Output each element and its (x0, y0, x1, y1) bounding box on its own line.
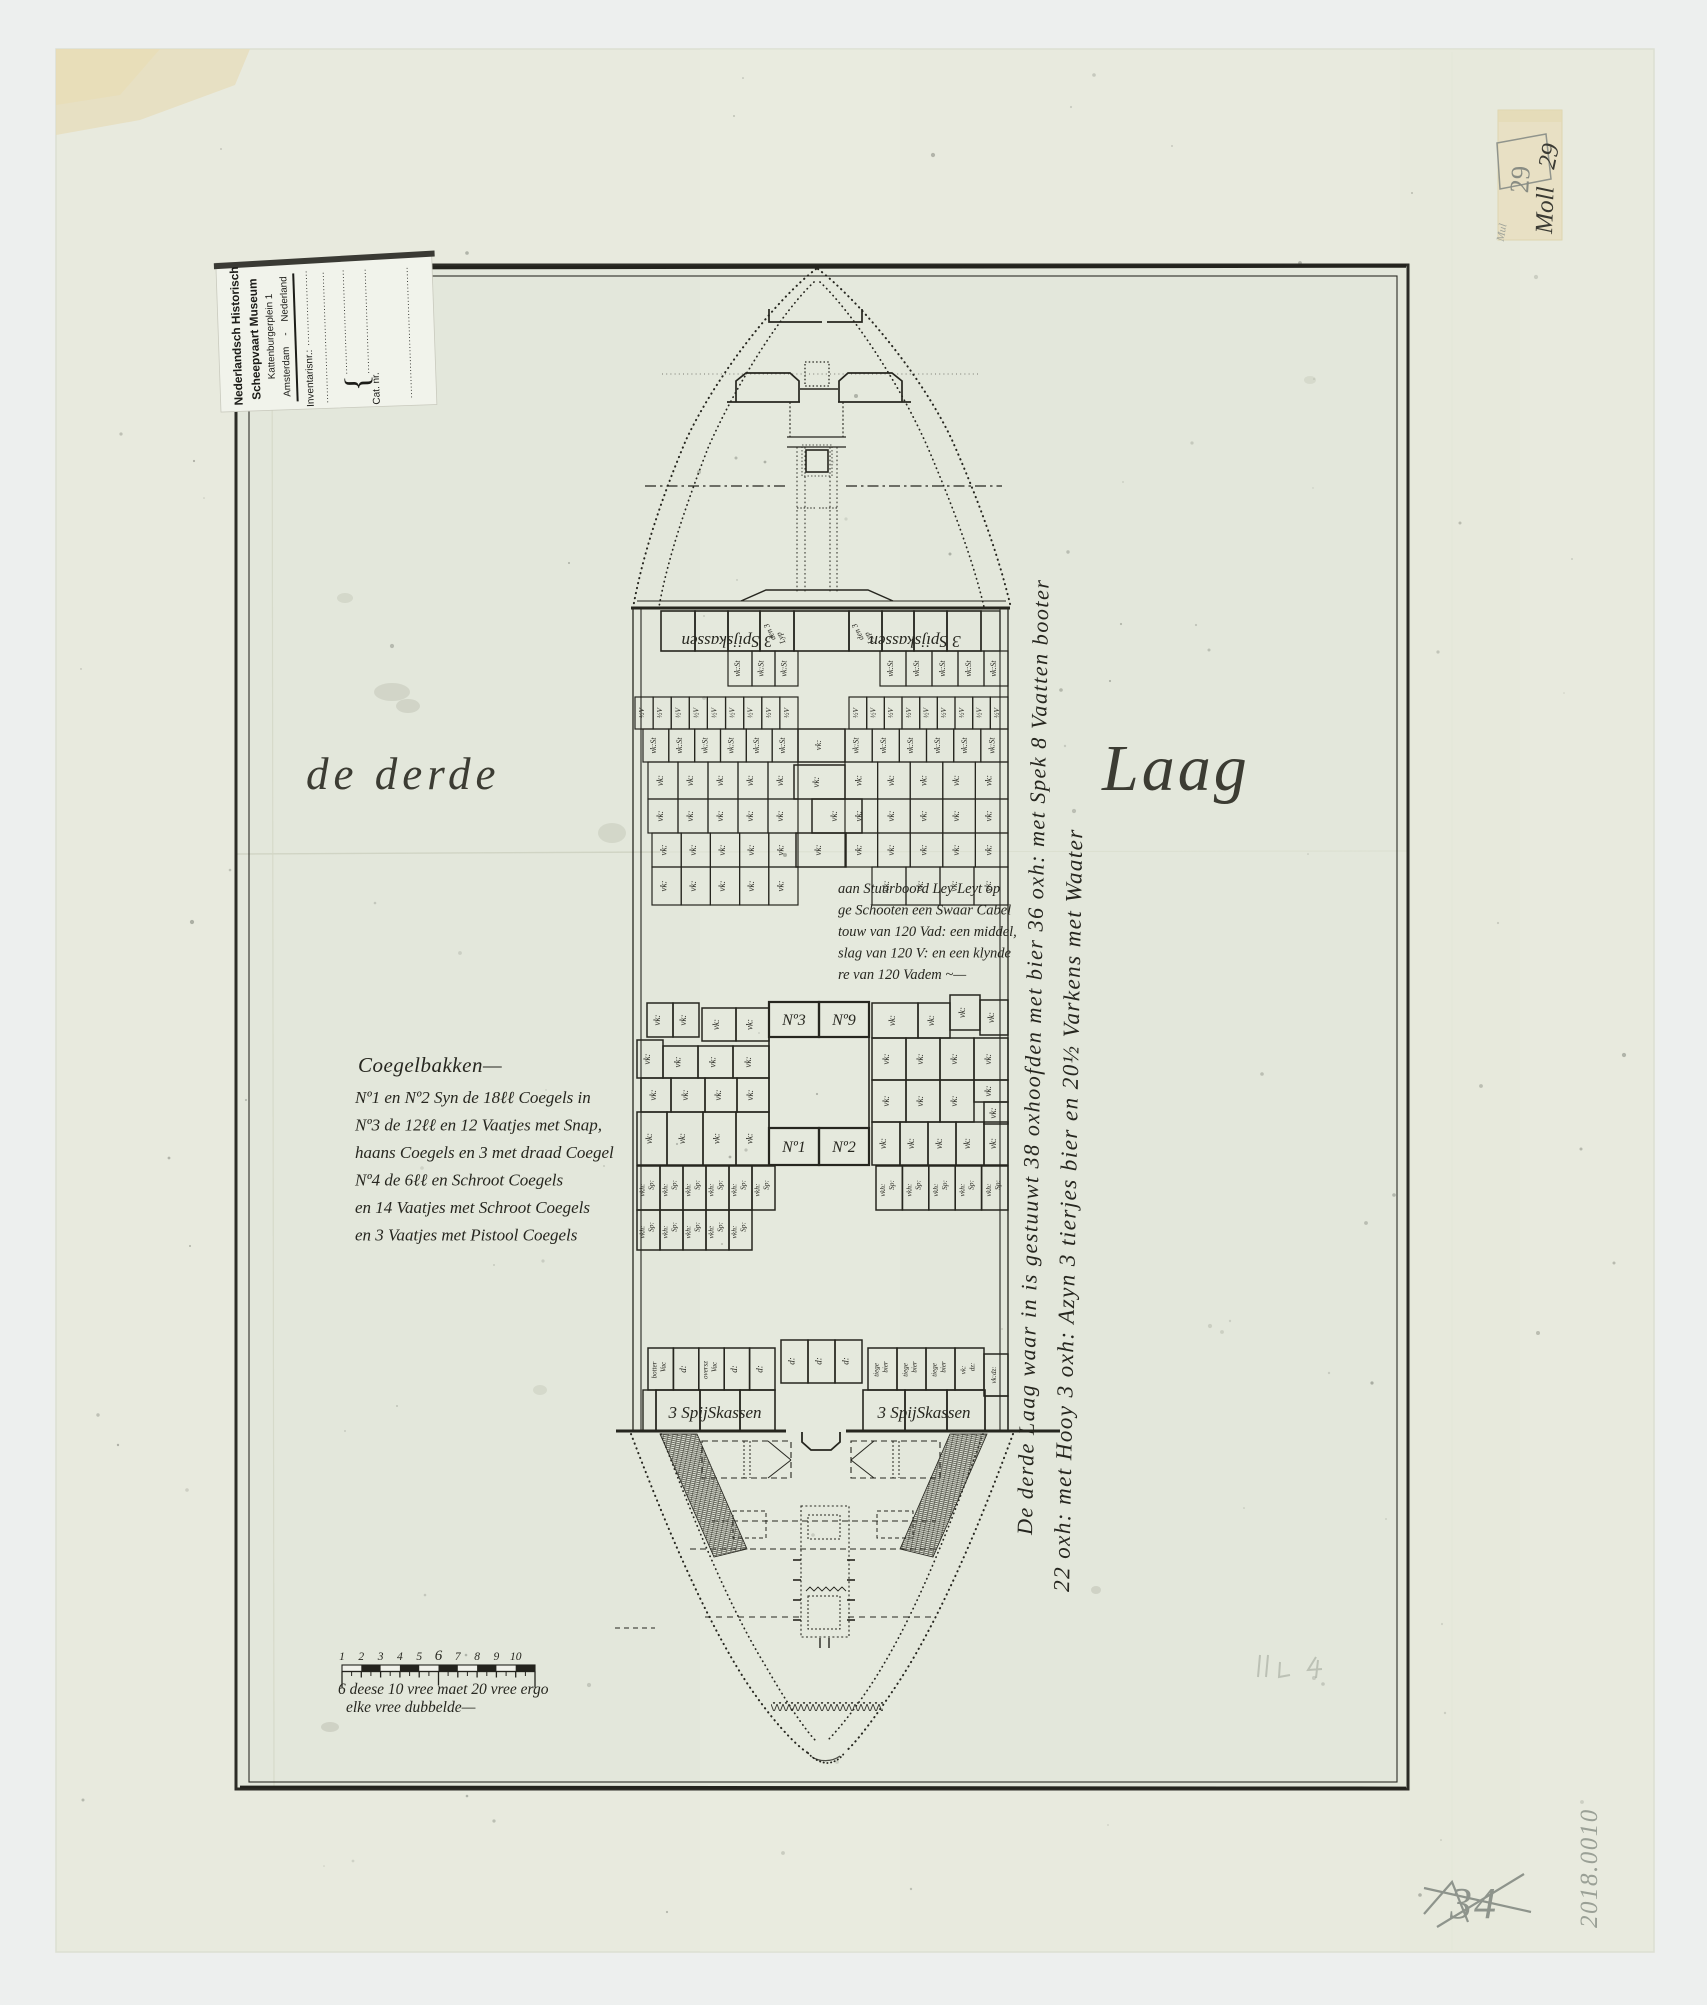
svg-text:Vac: Vac (711, 1361, 719, 1372)
svg-text:vk:: vk: (745, 811, 755, 822)
svg-text:Moll: Moll (1531, 186, 1560, 235)
svg-text:½V: ½V (957, 706, 966, 718)
svg-text:½V: ½V (851, 706, 860, 718)
svg-text:oversz: oversz (702, 1361, 710, 1379)
svg-text:vk:: vk: (708, 1057, 718, 1068)
svg-text:Inventarisnr.:: Inventarisnr.: (304, 349, 317, 407)
svg-text:Sp:: Sp: (914, 1180, 923, 1190)
svg-text:vk:St: vk:St (757, 660, 766, 677)
svg-text:vkh:: vkh: (638, 1226, 647, 1239)
svg-text:vk:: vk: (713, 1090, 723, 1101)
svg-text:Nº9: Nº9 (831, 1012, 856, 1029)
svg-text:Coegelbakken—: Coegelbakken— (358, 1053, 502, 1077)
svg-text:Sp:: Sp: (693, 1222, 702, 1232)
svg-text:vkh:: vkh: (661, 1184, 670, 1197)
svg-text:vk:St: vk:St (733, 660, 742, 677)
svg-text:vk:St: vk:St (960, 737, 969, 754)
svg-text:vk:: vk: (746, 845, 756, 856)
svg-text:Sp:: Sp: (739, 1180, 748, 1190)
svg-text:vk:St: vk:St (938, 660, 947, 677)
svg-text:Laag: Laag (1101, 732, 1250, 805)
svg-text:vk:: vk: (811, 777, 821, 788)
svg-text:vk:: vk: (688, 881, 698, 892)
svg-text:vk:: vk: (919, 845, 929, 856)
svg-text:vk:: vk: (715, 775, 725, 786)
svg-text:vk:: vk: (677, 1133, 687, 1144)
svg-text:bier: bier (911, 1361, 919, 1373)
svg-text:Nº4 de 6ℓℓ en Schroot Coegels: Nº4 de 6ℓℓ en Schroot Coegels (354, 1171, 564, 1190)
svg-text:vk:St: vk:St (752, 737, 761, 754)
svg-text:½V: ½V (728, 706, 737, 718)
svg-text:vk:dz:: vk:dz: (990, 1366, 998, 1383)
svg-text:vk:St: vk:St (906, 737, 915, 754)
svg-text:vkh:: vkh: (730, 1226, 739, 1239)
svg-text:½V: ½V (782, 706, 791, 718)
svg-text:10: 10 (510, 1651, 522, 1663)
svg-text:vk:: vk: (853, 811, 863, 822)
svg-text:vk:: vk: (984, 845, 994, 856)
svg-text:vk:: vk: (685, 811, 695, 822)
svg-text:vk:: vk: (715, 811, 725, 822)
svg-text:vk:: vk: (887, 1015, 897, 1026)
svg-text:2018.0010: 2018.0010 (1576, 1808, 1603, 1928)
svg-text:vk:: vk: (711, 1019, 721, 1030)
svg-text:Sp:: Sp: (647, 1180, 656, 1190)
svg-text:vk:: vk: (642, 1054, 652, 1065)
svg-text:vk:St: vk:St (964, 660, 973, 677)
svg-text:vkh:: vkh: (753, 1184, 762, 1197)
svg-text:vk:: vk: (775, 775, 785, 786)
svg-text:vk:St: vk:St (912, 660, 921, 677)
svg-text:vk:: vk: (878, 1138, 888, 1149)
svg-text:Sp:: Sp: (940, 1180, 949, 1190)
svg-text:vkh:: vkh: (984, 1184, 993, 1197)
svg-text:½V: ½V (975, 706, 984, 718)
svg-text:botter: botter (651, 1361, 659, 1378)
svg-text:3 Spijskassen: 3 Spijskassen (869, 632, 961, 651)
svg-text:bier: bier (882, 1361, 890, 1373)
svg-text:vk:St: vk:St (933, 737, 942, 754)
svg-text:vkh:: vkh: (957, 1184, 966, 1197)
svg-text:Nº1: Nº1 (781, 1139, 806, 1156)
svg-text:5: 5 (416, 1651, 422, 1663)
svg-text:vk:: vk: (960, 1366, 968, 1375)
svg-text:vk:: vk: (652, 1015, 662, 1026)
svg-text:vk:St: vk:St (987, 737, 996, 754)
svg-text:vk:: vk: (853, 775, 863, 786)
svg-text:vk:: vk: (775, 845, 785, 856)
svg-text:Nº3: Nº3 (781, 1012, 806, 1029)
svg-text:vk:: vk: (988, 1108, 998, 1119)
svg-text:vk:: vk: (951, 811, 961, 822)
svg-text:vk:: vk: (886, 811, 896, 822)
svg-text:touw van 120 Vad: een middel,: touw van 120 Vad: een middel, (838, 924, 1017, 940)
svg-text:tiege: tiege (931, 1363, 939, 1377)
svg-text:vk:: vk: (906, 1138, 916, 1149)
svg-text:vk:: vk: (926, 1015, 936, 1026)
svg-text:Sp:: Sp: (670, 1180, 679, 1190)
svg-text:vk:: vk: (983, 1054, 993, 1065)
svg-text:en 14 Vaatjes met Schroot Coeg: en 14 Vaatjes met Schroot Coegels (355, 1198, 590, 1217)
svg-text:vk:: vk: (919, 775, 929, 786)
svg-text:vk:: vk: (957, 1007, 967, 1018)
svg-text:vkh:: vkh: (707, 1184, 716, 1197)
svg-text:vkh:: vkh: (905, 1184, 914, 1197)
svg-text:vk:: vk: (915, 1054, 925, 1065)
svg-text:tiege: tiege (902, 1363, 910, 1377)
svg-text:vk:: vk: (745, 1133, 755, 1144)
svg-text:vk:: vk: (743, 1057, 753, 1068)
svg-text:vk:: vk: (746, 881, 756, 892)
svg-text:vk:: vk: (813, 845, 823, 856)
svg-text:vk:: vk: (962, 1138, 972, 1149)
svg-text:3 Spijskassen: 3 Spijskassen (681, 632, 773, 651)
svg-text:vk:: vk: (853, 845, 863, 856)
svg-text:Vac: Vac (660, 1361, 668, 1372)
svg-text:tiege: tiege (873, 1363, 881, 1377)
svg-text:½V: ½V (922, 706, 931, 718)
svg-text:d:: d: (678, 1365, 688, 1373)
svg-text:½V: ½V (673, 706, 682, 718)
svg-text:vk:St: vk:St (726, 737, 735, 754)
svg-text:vkh:: vkh: (684, 1184, 693, 1197)
svg-text:vk:: vk: (745, 1019, 755, 1030)
svg-text:vk:St: vk:St (886, 660, 895, 677)
svg-text:Sp:: Sp: (670, 1222, 679, 1232)
svg-text:vk:: vk: (934, 1138, 944, 1149)
svg-text:vk:: vk: (829, 811, 839, 822)
svg-text:vk:St: vk:St (778, 737, 787, 754)
svg-text:Sp:: Sp: (739, 1222, 748, 1232)
svg-text:vk:St: vk:St (879, 737, 888, 754)
svg-text:d:: d: (787, 1357, 797, 1365)
svg-text:vkh:: vkh: (931, 1184, 940, 1197)
svg-text:Nº1 en Nº2 Syn de 18ℓℓ Coegels: Nº1 en Nº2 Syn de 18ℓℓ Coegels in (354, 1088, 591, 1107)
svg-text:vk:: vk: (685, 775, 695, 786)
svg-text:vkh:: vkh: (878, 1184, 887, 1197)
svg-text:vk:: vk: (775, 811, 785, 822)
svg-text:½V: ½V (939, 706, 948, 718)
svg-text:de derde: de derde (306, 749, 501, 799)
svg-text:29: 29 (1504, 165, 1536, 194)
svg-text:d:: d: (754, 1365, 764, 1373)
svg-text:vk:St: vk:St (989, 660, 998, 677)
svg-text:vk:: vk: (775, 881, 785, 892)
svg-text:½V: ½V (655, 706, 664, 718)
svg-text:vk:: vk: (712, 1133, 722, 1144)
svg-text:dz:: dz: (969, 1363, 977, 1372)
svg-text:Sp:: Sp: (966, 1180, 975, 1190)
svg-text:elke vree dubbelde—: elke vree dubbelde— (346, 1699, 476, 1716)
svg-text:vk:: vk: (915, 1096, 925, 1107)
svg-text:vk:: vk: (659, 881, 669, 892)
svg-text:1: 1 (339, 1651, 345, 1663)
svg-text:vk:: vk: (949, 1054, 959, 1065)
svg-text:d:: d: (814, 1357, 824, 1365)
svg-text:½V: ½V (746, 706, 755, 718)
svg-text:3 SpijSkassen: 3 SpijSkassen (876, 1403, 970, 1422)
svg-text:vk:: vk: (919, 811, 929, 822)
svg-text:vk:St: vk:St (701, 737, 710, 754)
svg-text:Sp:: Sp: (716, 1180, 725, 1190)
svg-text:6 deese 10 vree maet 20 vree e: 6 deese 10 vree maet 20 vree ergo (338, 1681, 549, 1698)
svg-text:vk:: vk: (881, 1096, 891, 1107)
svg-text:vk:: vk: (988, 1138, 998, 1149)
svg-text:vk:: vk: (678, 1015, 688, 1026)
svg-text:haans Coegels en 3 met draad C: haans Coegels en 3 met draad Coegel (355, 1143, 614, 1162)
svg-text:Nº3 de 12ℓℓ en 12 Vaatjes met: Nº3 de 12ℓℓ en 12 Vaatjes met Snap, (354, 1116, 602, 1135)
svg-text:vk:: vk: (655, 811, 665, 822)
svg-text:½V: ½V (637, 706, 646, 718)
svg-text:½V: ½V (992, 706, 1001, 718)
svg-text:½V: ½V (869, 706, 878, 718)
svg-text:vk:St: vk:St (649, 737, 658, 754)
svg-text:d:: d: (841, 1357, 851, 1365)
svg-text:vk:: vk: (881, 1054, 891, 1065)
svg-text:Sp:: Sp: (647, 1222, 656, 1232)
svg-text:6: 6 (435, 1648, 443, 1664)
svg-text:vk:: vk: (673, 1057, 683, 1068)
svg-text:slag van 120 V: en een klynde: slag van 120 V: en een klynde (838, 946, 1012, 962)
svg-text:3: 3 (377, 1651, 384, 1663)
svg-text:vk:: vk: (886, 845, 896, 856)
svg-text:vk:: vk: (983, 1086, 993, 1097)
svg-text:3 SpijSkassen: 3 SpijSkassen (667, 1403, 761, 1422)
svg-text:vkh:: vkh: (684, 1226, 693, 1239)
svg-text:en 3 Vaatjes met Pistool Coege: en 3 Vaatjes met Pistool Coegels (355, 1226, 578, 1245)
svg-text:vk:: vk: (986, 1012, 996, 1023)
svg-text:½V: ½V (886, 706, 895, 718)
svg-text:8: 8 (474, 1651, 480, 1663)
svg-text:vk:: vk: (655, 775, 665, 786)
svg-text:vk:: vk: (717, 845, 727, 856)
svg-text:bier: bier (940, 1361, 948, 1373)
svg-text:vk:: vk: (984, 775, 994, 786)
svg-text:vk:: vk: (659, 845, 669, 856)
svg-text:vk:St: vk:St (675, 737, 684, 754)
svg-text:vk:: vk: (688, 845, 698, 856)
svg-text:vk:: vk: (745, 1090, 755, 1101)
svg-text:vk:: vk: (951, 845, 961, 856)
svg-text:½V: ½V (904, 706, 913, 718)
svg-text:½V: ½V (764, 706, 773, 718)
svg-text:vk:: vk: (644, 1133, 654, 1144)
svg-text:Sp:: Sp: (716, 1222, 725, 1232)
svg-text:aan Stuurboord Ley Leyt op: aan Stuurboord Ley Leyt op (838, 881, 1000, 897)
svg-text:vk:: vk: (813, 740, 823, 751)
svg-text:9: 9 (494, 1651, 500, 1663)
svg-text:re van 120 Vadem ~—: re van 120 Vadem ~— (838, 967, 966, 983)
svg-text:vk:: vk: (984, 811, 994, 822)
svg-text:½V: ½V (691, 706, 700, 718)
svg-text:½V: ½V (710, 706, 719, 718)
svg-text:vk:St: vk:St (780, 660, 789, 677)
svg-text:vk:: vk: (680, 1090, 690, 1101)
svg-text:vk:: vk: (951, 775, 961, 786)
svg-text:Sp:: Sp: (762, 1180, 771, 1190)
svg-text:vkh:: vkh: (730, 1184, 739, 1197)
svg-text:4: 4 (397, 1651, 403, 1663)
svg-text:vk:: vk: (717, 881, 727, 892)
svg-text:vk:: vk: (886, 775, 896, 786)
svg-text:vk:: vk: (949, 1096, 959, 1107)
svg-text:Sp:: Sp: (693, 1180, 702, 1190)
svg-text:Sp:: Sp: (993, 1180, 1002, 1190)
svg-text:vkh:: vkh: (638, 1184, 647, 1197)
svg-text:vkh:: vkh: (707, 1226, 716, 1239)
svg-text:ge Schooten een Swaar Cabel: ge Schooten een Swaar Cabel (838, 903, 1011, 919)
svg-text:{: { (339, 374, 377, 392)
svg-text:2: 2 (358, 1651, 364, 1663)
svg-text:d:: d: (729, 1365, 739, 1373)
svg-text:vk:St: vk:St (852, 737, 861, 754)
svg-text:vk:: vk: (745, 775, 755, 786)
svg-text:vkh:: vkh: (661, 1226, 670, 1239)
svg-text:Sp:: Sp: (887, 1180, 896, 1190)
svg-text:vk:: vk: (648, 1090, 658, 1101)
svg-text:Nº2: Nº2 (831, 1139, 856, 1156)
